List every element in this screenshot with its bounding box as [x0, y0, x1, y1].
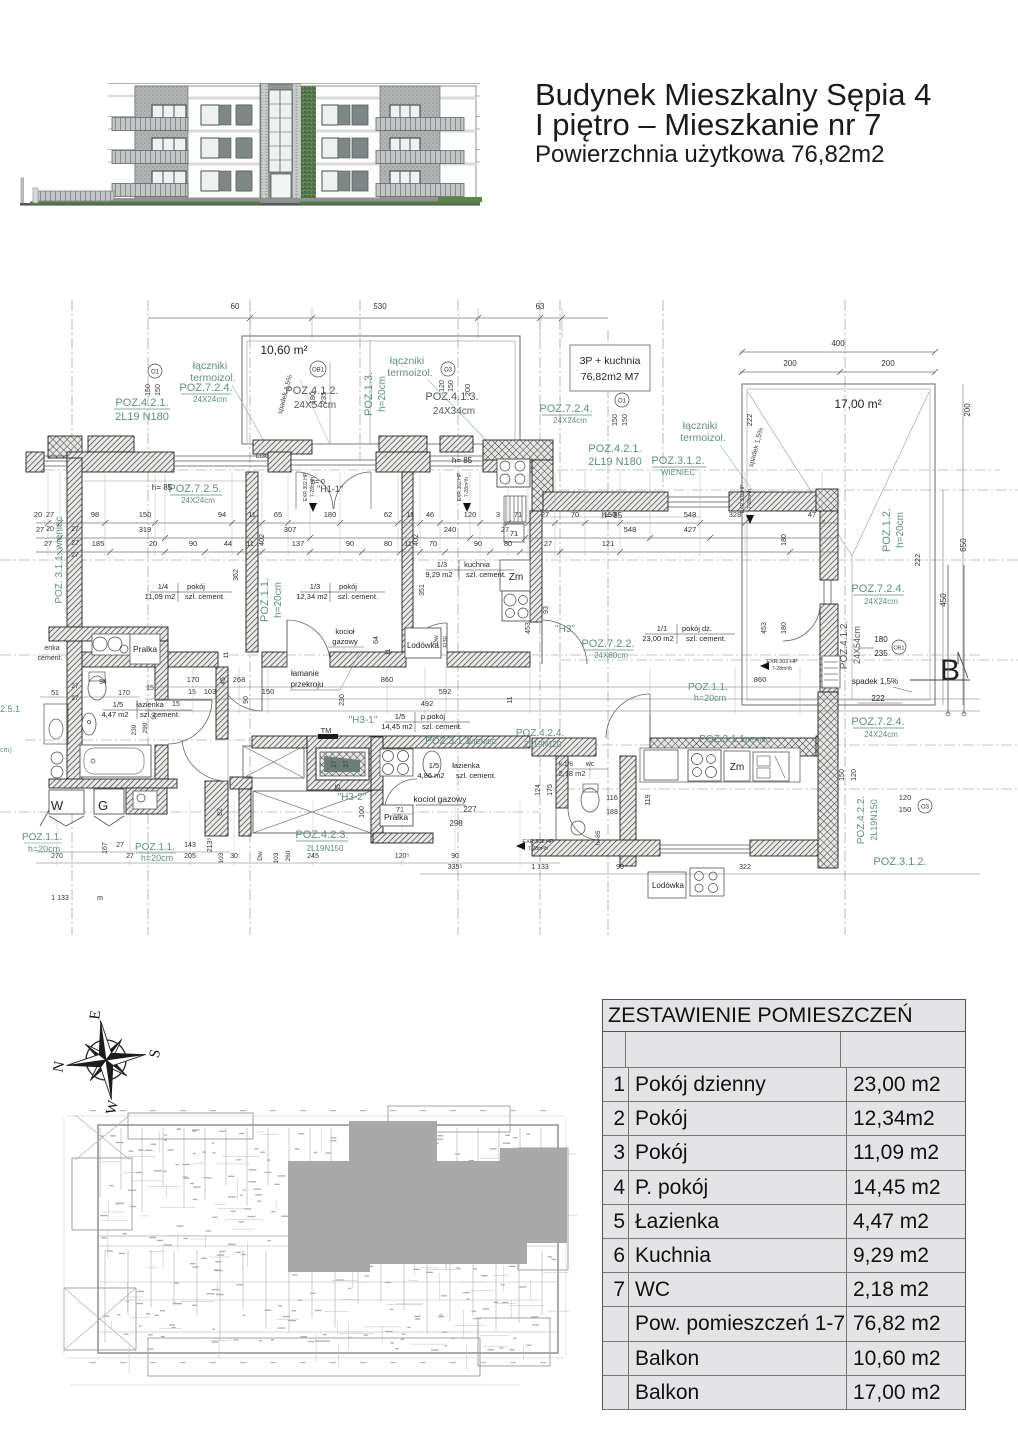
svg-text:O3: O3 — [444, 368, 453, 374]
svg-text:46: 46 — [426, 510, 434, 519]
svg-text:24X24cm: 24X24cm — [864, 597, 898, 606]
svg-text:548: 548 — [684, 510, 697, 519]
svg-text:11: 11 — [223, 651, 230, 658]
svg-text:POZ.4.2.1.: POZ.4.2.1. — [115, 397, 168, 409]
svg-text:4,86 m2: 4,86 m2 — [417, 771, 444, 780]
svg-text:27: 27 — [116, 842, 124, 849]
svg-text:WIENIEC: WIENIEC — [467, 739, 497, 746]
svg-text:Pralka: Pralka — [133, 644, 157, 654]
svg-text:530: 530 — [373, 302, 387, 311]
svg-text:20: 20 — [34, 510, 42, 519]
svg-text:362: 362 — [233, 569, 240, 581]
svg-text:170: 170 — [118, 690, 130, 697]
svg-text:24X24cm: 24X24cm — [553, 416, 587, 425]
svg-text:80: 80 — [384, 539, 392, 548]
svg-text:24X80cm: 24X80cm — [594, 651, 628, 660]
svg-text:1 133: 1 133 — [531, 864, 549, 871]
svg-text:15: 15 — [188, 689, 196, 696]
svg-text:EXR.302.HP: EXR.302.HP — [303, 472, 309, 501]
svg-text:400: 400 — [831, 339, 845, 348]
svg-text:27: 27 — [541, 510, 549, 519]
svg-text:335⁵: 335⁵ — [448, 864, 463, 871]
svg-text:EXR.302.HP: EXR.302.HP — [740, 484, 746, 513]
svg-text:k.1/6: k.1/6 — [559, 761, 573, 768]
svg-text:POZ.7.2.5.: POZ.7.2.5. — [168, 483, 221, 495]
svg-text:351: 351 — [419, 584, 426, 596]
svg-text:N: N — [50, 1060, 68, 1074]
svg-text:180: 180 — [781, 534, 788, 546]
svg-text:2L19N150: 2L19N150 — [307, 844, 344, 853]
svg-text:POZ.7.2.4.: POZ.7.2.4. — [539, 403, 592, 415]
svg-text:Lodówka: Lodówka — [652, 881, 685, 890]
svg-text:pokój: pokój — [187, 582, 205, 591]
svg-text:3P + kuchnia: 3P + kuchnia — [580, 355, 641, 367]
svg-text:1/3: 1/3 — [310, 582, 320, 591]
svg-text:enka: enka — [44, 645, 59, 652]
svg-text:POZ.7.2.4.: POZ.7.2.4. — [851, 716, 904, 728]
svg-text:POZ.4.2.1.: POZ.4.2.1. — [588, 443, 641, 455]
svg-text:POZ.1.1.: POZ.1.1. — [688, 682, 728, 693]
svg-text:15: 15 — [146, 685, 154, 692]
svg-text:121: 121 — [602, 539, 615, 548]
svg-text:27: 27 — [71, 540, 79, 547]
svg-text:90: 90 — [189, 539, 197, 548]
svg-text:POZ.3.1.1: POZ.3.1.1 — [699, 734, 745, 745]
svg-text:cement.: cement. — [38, 655, 63, 662]
svg-text:76,82m2 M7: 76,82m2 M7 — [581, 371, 640, 383]
svg-text:860: 860 — [754, 675, 767, 684]
svg-text:POZ. 3.1.1. wieniec: POZ. 3.1.1. wieniec — [54, 516, 65, 603]
svg-text:szl. cement.: szl. cement. — [456, 771, 496, 780]
svg-text:Dw: Dw — [433, 635, 440, 645]
svg-text:240: 240 — [444, 525, 457, 534]
svg-text:cm): cm) — [0, 747, 12, 754]
svg-text:222: 222 — [913, 554, 922, 567]
svg-text:20: 20 — [46, 526, 54, 533]
svg-text:103: 103 — [204, 687, 217, 696]
svg-text:222: 222 — [745, 414, 754, 427]
svg-text:szl. cement.: szl. cement. — [686, 634, 726, 643]
svg-text:B: B — [940, 654, 960, 687]
svg-text:24X24cm: 24X24cm — [864, 730, 898, 739]
svg-text:szl. cement.: szl. cement. — [466, 570, 506, 579]
svg-text:szl. cement.: szl. cement. — [422, 722, 462, 731]
svg-text:180: 180 — [324, 510, 337, 519]
svg-text:2L19 N180: 2L19 N180 — [588, 456, 642, 468]
svg-text:71: 71 — [510, 529, 518, 538]
svg-text:POZ.4.1.2.: POZ.4.1.2. — [285, 385, 338, 397]
svg-text:51: 51 — [51, 690, 59, 697]
svg-text:93: 93 — [543, 606, 550, 614]
svg-text:"H3": "H3" — [555, 624, 575, 635]
svg-text:E: E — [87, 1009, 104, 1020]
svg-text:Dw: Dw — [257, 851, 264, 861]
svg-text:11: 11 — [404, 539, 412, 548]
svg-text:188: 188 — [606, 809, 618, 816]
svg-text:szl. cement.: szl. cement. — [185, 592, 225, 601]
svg-text:"H3-1": "H3-1" — [349, 715, 378, 726]
svg-text:EXR.302.HP: EXR.302.HP — [766, 659, 798, 665]
svg-text:4,47 m2: 4,47 m2 — [101, 710, 128, 719]
svg-text:11,09 m2: 11,09 m2 — [145, 592, 176, 601]
svg-text:O1: O1 — [151, 370, 160, 376]
svg-text:124: 124 — [535, 784, 542, 796]
svg-text:WIENIEC: WIENIEC — [741, 737, 771, 744]
svg-text:94: 94 — [218, 510, 226, 519]
svg-text:7-28m²/h: 7-28m²/h — [528, 846, 548, 852]
svg-text:15: 15 — [172, 701, 180, 708]
svg-text:120: 120 — [899, 793, 912, 802]
svg-text:h=20cm: h=20cm — [694, 693, 726, 703]
svg-text:1 133: 1 133 — [51, 895, 69, 902]
svg-text:150: 150 — [622, 414, 629, 426]
svg-text:235: 235 — [874, 649, 888, 658]
svg-text:27: 27 — [71, 695, 79, 702]
svg-text:70: 70 — [571, 510, 579, 519]
svg-text:103: 103 — [218, 852, 225, 863]
svg-text:Zm: Zm — [730, 762, 744, 773]
svg-text:h=20cm: h=20cm — [377, 376, 388, 412]
svg-text:44: 44 — [224, 539, 232, 548]
svg-text:27: 27 — [71, 683, 79, 690]
svg-text:7-28m²/h: 7-28m²/h — [747, 489, 753, 509]
svg-text:OB1: OB1 — [312, 368, 325, 374]
svg-text:EI30: EI30 — [256, 454, 269, 460]
svg-text:27: 27 — [46, 510, 54, 519]
svg-text:przekroju: przekroju — [291, 680, 324, 689]
svg-text:90: 90 — [151, 712, 158, 720]
svg-text:62: 62 — [384, 510, 392, 519]
svg-text:łączniki: łączniki — [193, 360, 227, 372]
svg-text:Zm: Zm — [509, 572, 523, 583]
svg-text:12,34 m2: 12,34 m2 — [296, 592, 327, 601]
svg-text:p.pokój: p.pokój — [421, 712, 446, 721]
svg-text:245: 245 — [307, 853, 319, 860]
svg-text:65: 65 — [274, 510, 282, 519]
svg-text:11: 11 — [507, 696, 514, 703]
svg-text:POZ.3.1.2.: POZ.3.1.2. — [873, 856, 926, 868]
svg-text:szl. cement.: szl. cement. — [140, 710, 180, 719]
svg-text:kocioł: kocioł — [335, 627, 355, 636]
svg-text:27: 27 — [36, 525, 44, 534]
svg-text:45: 45 — [220, 677, 227, 685]
svg-text:20: 20 — [149, 539, 157, 548]
svg-text:spadek 1,5%: spadek 1,5% — [748, 427, 765, 468]
svg-text:łączniki: łączniki — [683, 420, 717, 432]
svg-text:27: 27 — [71, 526, 79, 533]
svg-text:h= 85: h= 85 — [452, 456, 473, 465]
svg-text:POZ.3.1.1: POZ.3.1.1 — [425, 736, 471, 747]
svg-text:h=20cm: h=20cm — [273, 582, 284, 618]
svg-text:260: 260 — [285, 850, 292, 861]
svg-text:wc: wc — [585, 761, 595, 768]
svg-text:150: 150 — [604, 510, 617, 519]
svg-text:307: 307 — [284, 525, 297, 534]
svg-text:27: 27 — [544, 539, 552, 548]
svg-text:47: 47 — [808, 510, 816, 519]
svg-text:kuchnia: kuchnia — [464, 560, 491, 569]
svg-text:7-28m²/h: 7-28m²/h — [310, 477, 316, 497]
svg-text:POZ.4.1.3.: POZ.4.1.3. — [425, 391, 478, 403]
svg-text:pokój dz.: pokój dz. — [682, 624, 712, 633]
svg-text:119: 119 — [645, 794, 652, 805]
svg-text:h=20cm: h=20cm — [895, 512, 906, 548]
svg-text:POZ.7.2.4.: POZ.7.2.4. — [851, 583, 904, 595]
svg-text:POZ.1.1.: POZ.1.1. — [135, 842, 175, 853]
svg-text:23,00 m2: 23,00 m2 — [642, 634, 673, 643]
svg-text:24X24cm: 24X24cm — [193, 395, 227, 404]
svg-text:2L19N120: 2L19N120 — [525, 740, 562, 749]
svg-text:O1: O1 — [618, 399, 627, 405]
svg-text:7-28m²/h: 7-28m²/h — [464, 477, 470, 497]
svg-text:185: 185 — [92, 539, 105, 548]
svg-text:143: 143 — [184, 842, 196, 849]
svg-text:71: 71 — [514, 510, 522, 519]
svg-text:kocioł gazowy: kocioł gazowy — [414, 794, 468, 804]
svg-text:70: 70 — [429, 539, 437, 548]
svg-text:TM: TM — [321, 726, 332, 735]
svg-text:453: 453 — [761, 622, 768, 634]
svg-text:100: 100 — [359, 806, 366, 818]
svg-text:2.5.1: 2.5.1 — [0, 704, 20, 714]
svg-text:h=20cm: h=20cm — [141, 853, 173, 863]
svg-text:548: 548 — [624, 525, 637, 534]
svg-text:150: 150 — [262, 687, 275, 696]
svg-text:POZ.1.2.: POZ.1.2. — [881, 508, 893, 552]
svg-text:150: 150 — [612, 414, 619, 426]
svg-text:1/5: 1/5 — [395, 712, 405, 721]
svg-text:98: 98 — [91, 510, 99, 519]
svg-text:2,18 m2: 2,18 m2 — [558, 769, 585, 778]
svg-text:POZ.4.2.2.: POZ.4.2.2. — [856, 796, 867, 844]
svg-text:POZ.7.2.2.: POZ.7.2.2. — [581, 638, 634, 650]
svg-text:63: 63 — [536, 302, 545, 311]
svg-text:POZ.1.1.: POZ.1.1. — [22, 832, 62, 843]
svg-text:24X34cm: 24X34cm — [433, 406, 475, 417]
svg-text:POZ.7.2.4.: POZ.7.2.4. — [179, 382, 232, 394]
svg-text:POZ.3.1.2.: POZ.3.1.2. — [651, 455, 704, 467]
svg-text:90: 90 — [616, 864, 624, 871]
svg-text:2L19 N180: 2L19 N180 — [115, 411, 169, 423]
svg-text:30: 30 — [230, 853, 238, 860]
svg-text:11: 11 — [248, 510, 256, 519]
svg-text:94: 94 — [99, 679, 107, 686]
svg-text:1/4: 1/4 — [158, 582, 168, 591]
svg-text:150: 150 — [155, 384, 162, 396]
svg-text:290: 290 — [142, 722, 149, 733]
svg-text:EXR.302.HP: EXR.302.HP — [457, 472, 463, 501]
svg-text:450: 450 — [939, 593, 948, 607]
svg-text:EXR.302.HP: EXR.302.HP — [522, 839, 554, 845]
svg-text:427: 427 — [684, 525, 697, 534]
svg-text:492: 492 — [421, 699, 434, 708]
svg-text:322: 322 — [739, 864, 751, 871]
svg-text:POZ.4.2.3.: POZ.4.2.3. — [295, 829, 348, 841]
svg-text:szl. cement.: szl. cement. — [338, 592, 378, 601]
svg-text:24X54cm: 24X54cm — [294, 400, 336, 411]
svg-text:3: 3 — [496, 510, 500, 519]
svg-text:POZ.1.1.: POZ.1.1. — [259, 578, 271, 622]
svg-text:230: 230 — [339, 694, 346, 706]
svg-text:spadek 1,5%: spadek 1,5% — [852, 677, 898, 686]
svg-text:71: 71 — [396, 807, 404, 814]
svg-text:24X54cm: 24X54cm — [852, 626, 862, 664]
svg-text:17,00 m²: 17,00 m² — [834, 397, 881, 411]
svg-text:200: 200 — [963, 403, 972, 417]
svg-text:7-28m²/h: 7-28m²/h — [772, 666, 792, 672]
svg-text:650: 650 — [959, 538, 968, 552]
svg-text:łamanie: łamanie — [291, 669, 320, 678]
svg-text:82: 82 — [217, 808, 224, 816]
svg-text:10,60 m²: 10,60 m² — [260, 343, 307, 357]
svg-text:S: S — [147, 1048, 164, 1059]
svg-text:27: 27 — [126, 853, 134, 860]
svg-text:150: 150 — [145, 384, 152, 396]
svg-text:27: 27 — [343, 760, 350, 768]
svg-text:150: 150 — [139, 510, 152, 519]
svg-text:592: 592 — [439, 687, 452, 696]
svg-text:90: 90 — [474, 539, 482, 548]
svg-text:319: 319 — [139, 525, 152, 534]
svg-text:gazowy: gazowy — [332, 637, 358, 646]
svg-text:POZ.1.3.: POZ.1.3. — [363, 372, 375, 416]
svg-text:termoizol.: termoizol. — [680, 432, 726, 444]
svg-text:termoizol.: termoizol. — [387, 367, 433, 379]
svg-text:OB1: OB1 — [893, 646, 904, 652]
svg-text:90: 90 — [243, 696, 250, 704]
svg-text:m: m — [97, 895, 103, 902]
svg-text:268: 268 — [233, 675, 246, 684]
svg-text:WIENIEC: WIENIEC — [661, 468, 695, 477]
svg-text:137: 137 — [292, 539, 305, 548]
svg-text:270: 270 — [51, 853, 63, 860]
svg-text:205: 205 — [184, 853, 196, 860]
svg-text:85: 85 — [335, 784, 342, 792]
svg-text:150: 150 — [899, 805, 912, 814]
svg-text:14,45 m2: 14,45 m2 — [381, 722, 412, 731]
svg-text:27: 27 — [71, 552, 79, 559]
svg-text:200: 200 — [881, 359, 895, 368]
svg-text:170: 170 — [187, 675, 200, 684]
svg-text:1/1: 1/1 — [657, 624, 667, 633]
svg-text:402: 402 — [259, 534, 266, 546]
svg-text:11: 11 — [406, 510, 414, 519]
svg-text:W: W — [51, 798, 64, 813]
svg-text:1/3: 1/3 — [437, 560, 447, 569]
svg-text:11: 11 — [385, 648, 392, 655]
svg-text:64: 64 — [373, 636, 380, 644]
svg-text:9,29 m2: 9,29 m2 — [425, 570, 452, 579]
svg-text:298: 298 — [449, 819, 463, 828]
svg-text:213⁵: 213⁵ — [207, 838, 214, 853]
svg-text:175: 175 — [547, 784, 554, 796]
svg-text:EI30: EI30 — [443, 636, 449, 647]
svg-text:239: 239 — [131, 724, 138, 735]
svg-text:łazienka: łazienka — [136, 700, 164, 709]
svg-text:120⁵: 120⁵ — [395, 853, 410, 860]
svg-text:90: 90 — [451, 853, 459, 860]
svg-text:180: 180 — [781, 622, 788, 634]
svg-text:90: 90 — [346, 539, 354, 548]
svg-text:O3: O3 — [921, 805, 930, 811]
svg-text:h=85: h=85 — [595, 830, 602, 845]
svg-text:POZ.4.1.2.: POZ.4.1.2. — [839, 621, 850, 669]
svg-text:227: 227 — [463, 805, 477, 814]
svg-text:103: 103 — [273, 852, 280, 863]
svg-text:180: 180 — [874, 635, 888, 644]
svg-text:POZ.4.2.4.: POZ.4.2.4. — [516, 728, 564, 739]
svg-text:453: 453 — [525, 622, 532, 634]
svg-text:200: 200 — [783, 359, 797, 368]
svg-text:łączniki: łączniki — [390, 355, 424, 367]
svg-text:"H3-2": "H3-2" — [338, 792, 367, 803]
svg-text:24X24cm: 24X24cm — [181, 496, 215, 505]
svg-text:222: 222 — [871, 694, 885, 703]
svg-text:167: 167 — [102, 842, 109, 854]
svg-text:G: G — [98, 798, 108, 813]
svg-text:2L19N150: 2L19N150 — [869, 799, 879, 841]
svg-text:1/5: 1/5 — [113, 700, 123, 709]
svg-text:łazienka: łazienka — [452, 761, 480, 770]
svg-text:27: 27 — [331, 760, 338, 768]
svg-text:860: 860 — [381, 675, 394, 684]
svg-text:11: 11 — [246, 539, 254, 548]
svg-text:pokój: pokój — [339, 582, 357, 591]
svg-text:402: 402 — [413, 534, 420, 546]
svg-text:1/5: 1/5 — [429, 761, 439, 770]
svg-text:60: 60 — [231, 302, 240, 311]
svg-text:116: 116 — [606, 793, 618, 802]
svg-text:150: 150 — [839, 769, 846, 781]
svg-text:120: 120 — [851, 769, 858, 781]
